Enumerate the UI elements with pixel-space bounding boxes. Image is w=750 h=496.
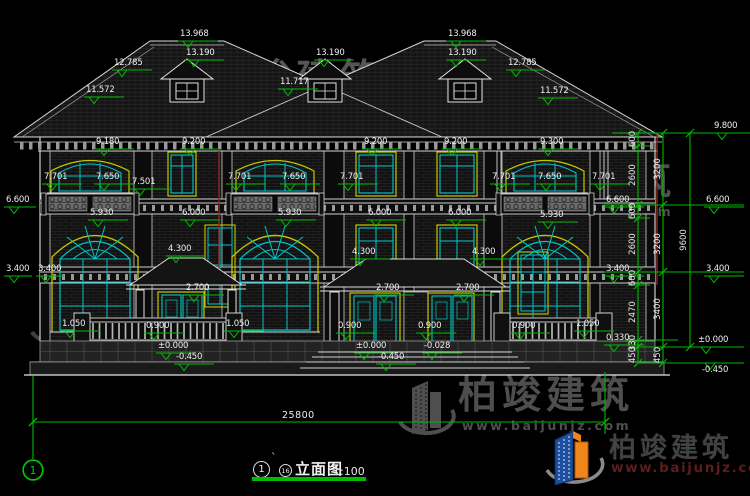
title-tick-mark: ` — [271, 451, 277, 464]
title-underline — [252, 477, 366, 481]
brand-logo-url: www.baijunjz.com — [611, 460, 750, 476]
title-number-bubble: 1 — [253, 461, 270, 478]
brand-logo: 柏竣建筑 www.baijunjz.com — [543, 424, 750, 494]
cad-elevation-screenshot: 柏竣建筑www.baijunjz.com柏竣建筑www.baijunjz.com… — [0, 0, 750, 496]
brand-logo-icon — [543, 424, 607, 490]
total-width-dimension: 25800 — [282, 410, 315, 421]
axis-bubble-1: 1 — [23, 460, 43, 480]
title-ref-bubble: 16 — [279, 464, 292, 477]
elevation-drawing — [0, 0, 750, 496]
plinth-ground — [24, 341, 670, 375]
